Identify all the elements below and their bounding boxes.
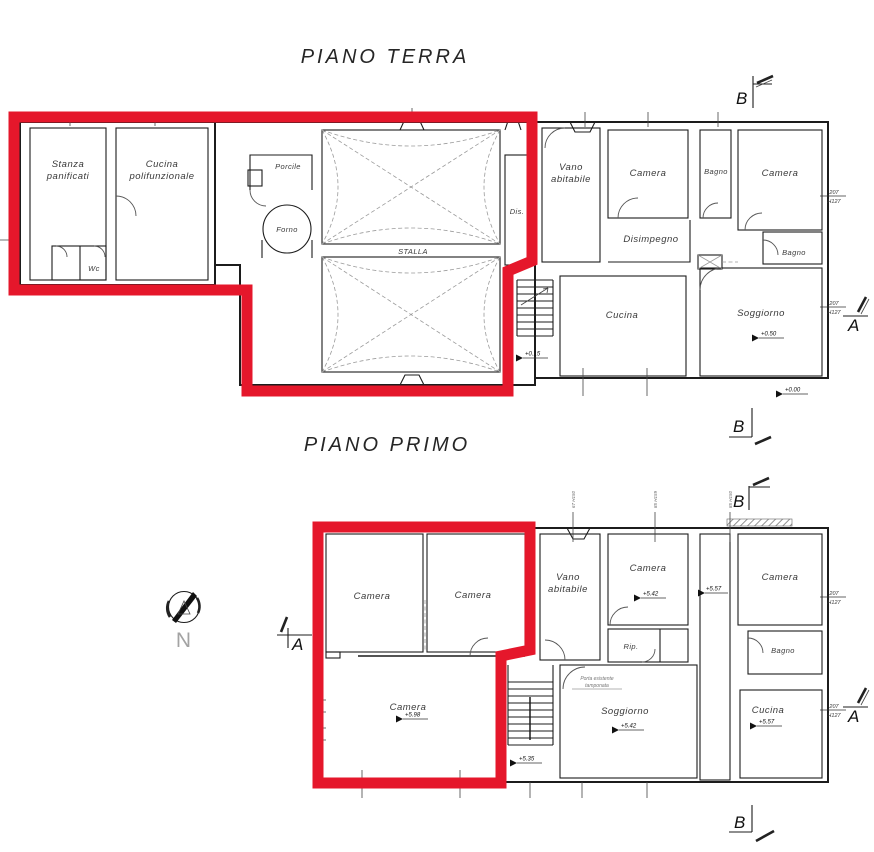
section-marker-b-bottom-ff: B: [729, 805, 774, 841]
window-tick-label-1: 67 H150: [571, 490, 576, 508]
window-tag-width: 207: [828, 591, 839, 597]
room-label-forno: Forno: [276, 225, 298, 234]
level-value-stairs-gf: +0.15: [525, 352, 541, 358]
room-label-stanza-panificati: Stanza: [52, 159, 85, 170]
ground-floor-plan: Stanza panificati Cucina polifunzionale …: [0, 76, 869, 444]
room-label-cucina-polifunzionale-2: polifunzionale: [128, 171, 194, 182]
room-label-bagno-ff: Bagno: [771, 646, 795, 655]
room-label-vano-abitabile-2: abitabile: [551, 174, 591, 185]
section-letter-a: A: [847, 316, 859, 335]
room-label-vano-abitabile-ff-2: abitabile: [548, 584, 588, 595]
first-floor-plan: 67 H150 85 H159 85 H150 Camera Camera Ca…: [277, 478, 869, 841]
room-label-soggiorno-ff: Soggiorno: [601, 706, 649, 717]
section-marker-b-top-gf: B: [736, 76, 773, 108]
note-line-1: Porta esistente: [580, 676, 614, 682]
note-line-2: tamponata: [585, 683, 609, 689]
window-tag-height: H127: [827, 713, 841, 719]
room-label-camera-tm: Camera: [455, 590, 492, 601]
room-label-camera-tl: Camera: [354, 591, 391, 602]
level-value-soggiorno-gf: +0.50: [761, 332, 777, 338]
first-floor-title: PIANO PRIMO: [304, 434, 470, 456]
section-letter-b: B: [736, 89, 747, 108]
level-value-cucina-ff: +5.57: [759, 720, 775, 726]
room-label-camera-1: Camera: [630, 168, 667, 179]
level-value-stairs-ff: +5.35: [519, 757, 535, 763]
section-letter-a: A: [291, 635, 303, 654]
level-marker-camera-mid: +5.42: [634, 592, 666, 602]
ground-floor-title: PIANO TERRA: [301, 46, 470, 68]
level-value-exterior-gf: +0.00: [785, 388, 801, 394]
window-tag-height: H127: [827, 199, 841, 205]
section-letter-b: B: [734, 813, 745, 832]
room-label-porcile: Porcile: [275, 162, 301, 171]
window-tick-label-2: 85 H159: [653, 490, 658, 508]
compass-north-label: N: [176, 629, 192, 652]
section-letter-b: B: [733, 417, 744, 436]
floor-plan-sheet: PIANO TERRA PIANO PRIMO: [0, 0, 874, 852]
hatched-strip: [727, 519, 792, 526]
room-label-vano-abitabile-ff: Vano: [556, 572, 580, 583]
window-tag-ff-upper: 207 H127: [820, 591, 846, 606]
room-label-disimpegno: Disimpegno: [623, 234, 678, 245]
room-label-cucina-ff: Cucina: [752, 705, 785, 716]
window-tag-height: H127: [827, 310, 841, 316]
room-label-bagno-2: Bagno: [782, 248, 806, 257]
level-value-camera-big: +5.98: [405, 713, 421, 719]
room-label-cucina-gf: Cucina: [606, 310, 639, 321]
window-tag-gf-upper: 207 H127: [820, 190, 846, 205]
window-tag-width: 207: [828, 190, 839, 196]
section-marker-a-right-gf: A: [843, 297, 869, 335]
room-label-camera-big: Camera: [390, 702, 427, 713]
room-label-rip: Rip.: [624, 642, 639, 651]
room-label-cucina-polifunzionale: Cucina: [146, 159, 179, 170]
compass-north-icon: [167, 592, 199, 624]
section-marker-a-right-ff: A: [843, 688, 869, 726]
section-marker-b-bottom-gf: B: [729, 408, 771, 444]
note-porta-esistente: Porta esistente tamponata: [572, 676, 622, 689]
section-letter-b: B: [733, 492, 744, 511]
window-tag-height: H127: [827, 600, 841, 606]
ground-floor-highlight-outline: [14, 117, 532, 391]
room-label-dis: Dis.: [510, 207, 525, 216]
level-marker-soggiorno-gf: +0.50: [752, 332, 784, 342]
level-marker-exterior-gf: +0.00: [776, 388, 808, 398]
room-label-stanza-panificati-2: panificati: [46, 171, 90, 182]
level-marker-corridor: +5.57: [698, 587, 728, 597]
room-label-vano-abitabile: Vano: [559, 162, 583, 173]
window-tag-gf-lower: 207 H127: [820, 301, 846, 316]
window-tag-width: 207: [828, 301, 839, 307]
level-marker-cucina-ff: +5.57: [750, 720, 782, 730]
section-marker-b-top-ff: B: [733, 478, 770, 511]
ground-floor-doors: [56, 128, 778, 290]
level-value-camera-mid: +5.42: [643, 592, 659, 598]
room-label-stalla: STALLA: [398, 247, 428, 256]
floor-plan-drawing: PIANO TERRA PIANO PRIMO: [0, 0, 874, 852]
section-marker-a-left-ff: A: [277, 617, 312, 654]
window-tag-ff-lower: 207 H127: [820, 704, 846, 719]
first-floor-stairs: [508, 665, 553, 745]
level-marker-camera-big: +5.98: [396, 713, 428, 723]
room-label-camera-mid: Camera: [630, 563, 667, 574]
section-letter-a: A: [847, 707, 859, 726]
level-marker-soggiorno-ff: +5.42: [612, 724, 644, 734]
first-floor-highlight-outline: [318, 527, 530, 783]
level-value-corridor: +5.57: [706, 587, 722, 593]
level-marker-stairs-gf: +0.15: [516, 352, 548, 362]
room-label-wc: Wc: [88, 264, 100, 273]
room-label-camera-right: Camera: [762, 572, 799, 583]
window-tag-width: 207: [828, 704, 839, 710]
room-label-camera-2: Camera: [762, 168, 799, 179]
first-floor-walls: [316, 512, 828, 798]
room-label-bagno-1: Bagno: [704, 167, 728, 176]
level-marker-stairs-ff: +5.35: [510, 757, 542, 767]
room-label-soggiorno-gf: Soggiorno: [737, 308, 785, 319]
level-value-soggiorno-ff: +5.42: [621, 724, 637, 730]
